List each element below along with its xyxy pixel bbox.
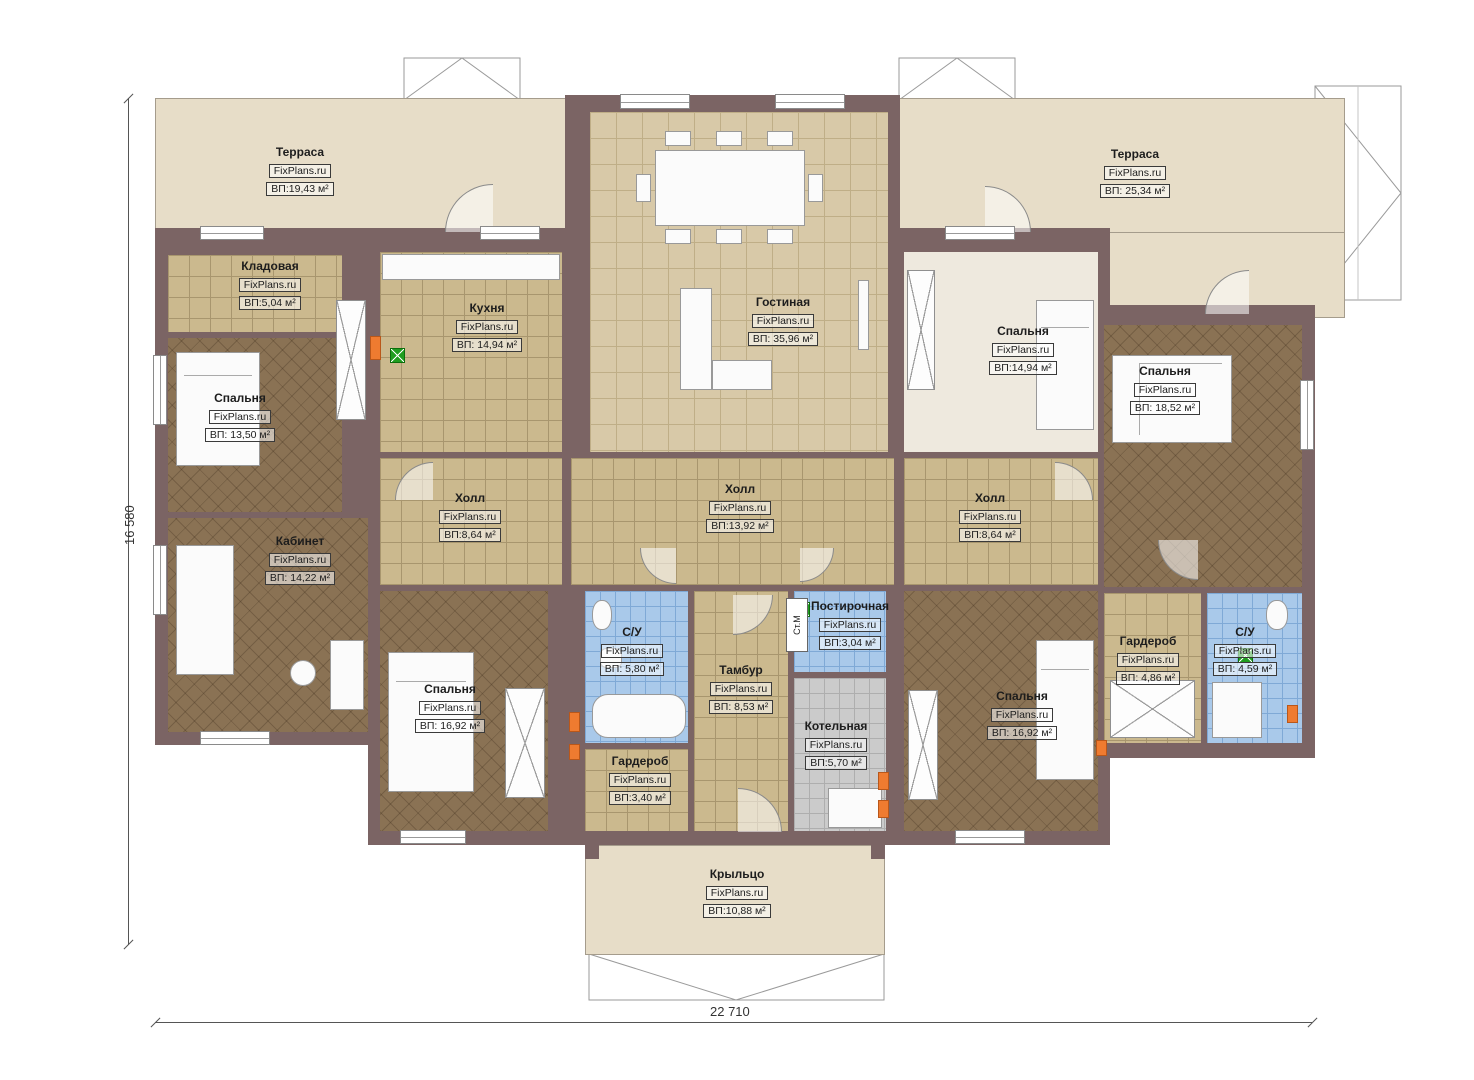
area-value: ВП:10,88 м² [703, 904, 770, 918]
area-value: ВП:3,04 м² [819, 636, 881, 650]
sofa [680, 288, 712, 390]
label-terrace-right: Терраса FixPlans.ru ВП: 25,34 м² [1080, 148, 1190, 200]
area-value: ВП: 16,92 м² [987, 726, 1057, 740]
watermark: FixPlans.ru [1117, 653, 1180, 667]
label-office: Кабинет FixPlans.ru ВП: 14,22 м² [245, 535, 355, 587]
label-bedroom-left: Спальня FixPlans.ru ВП: 13,50 м² [185, 392, 295, 444]
watermark: FixPlans.ru [819, 618, 882, 632]
label-bathroom-right: С/У FixPlans.ru ВП: 4,59 м² [1190, 626, 1300, 678]
label-wardrobe-center: Гардероб FixPlans.ru ВП:3,40 м² [585, 755, 695, 807]
chair [767, 131, 793, 146]
sofa [712, 360, 772, 390]
porch-column-right [871, 845, 885, 859]
area-value: ВП: 16,92 м² [415, 719, 485, 733]
watermark: FixPlans.ru [706, 886, 769, 900]
floor-plan: Ст.М Терраса FixPlans.ru ВП:19,43 м² Тер… [0, 0, 1474, 1080]
area-value: ВП: 8,53 м² [709, 700, 773, 714]
area-value: ВП:5,70 м² [805, 756, 867, 770]
label-livingroom: Гостиная FixPlans.ru ВП: 35,96 м² [728, 296, 838, 348]
label-vestibule: Тамбур FixPlans.ru ВП: 8,53 м² [686, 664, 796, 716]
wardrobe-cabinet [907, 270, 935, 390]
watermark: FixPlans.ru [456, 320, 519, 334]
watermark: FixPlans.ru [419, 701, 482, 715]
area-value: ВП: 4,59 м² [1213, 662, 1277, 676]
window [200, 226, 264, 240]
radiator [1287, 705, 1298, 723]
area-value: ВП:19,43 м² [266, 182, 333, 196]
boiler-unit [828, 788, 882, 828]
watermark: FixPlans.ru [1214, 644, 1277, 658]
watermark: FixPlans.ru [959, 510, 1022, 524]
label-hall-right: Холл FixPlans.ru ВП:8,64 м² [935, 492, 1045, 544]
terrace-left-area [155, 98, 568, 234]
radiator [569, 712, 580, 732]
label-porch: Крыльцо FixPlans.ru ВП:10,88 м² [682, 868, 792, 920]
radiator [569, 744, 580, 760]
chair [716, 229, 742, 244]
bathtub [592, 694, 686, 738]
watermark: FixPlans.ru [601, 644, 664, 658]
wardrobe-cabinet [505, 688, 545, 798]
area-value: ВП: 4,86 м² [1116, 671, 1180, 685]
label-boiler: Котельная FixPlans.ru ВП:5,70 м² [781, 720, 891, 772]
watermark: FixPlans.ru [209, 410, 272, 424]
area-value: ВП: 14,22 м² [265, 571, 335, 585]
dimension-line-horizontal [155, 1022, 1312, 1023]
label-bedroom-far-right: Спальня FixPlans.ru ВП: 18,52 м² [1110, 365, 1220, 417]
area-value: ВП: 13,50 м² [205, 428, 275, 442]
window [153, 545, 167, 615]
roof-porch-icon [588, 953, 885, 1001]
label-bedroom-bottom-right: Спальня FixPlans.ru ВП: 16,92 м² [967, 690, 1077, 742]
chair [808, 174, 823, 202]
watermark: FixPlans.ru [709, 501, 772, 515]
label-bedroom-top-right: Спальня FixPlans.ru ВП:14,94 м² [968, 325, 1078, 377]
window [153, 355, 167, 425]
label-terrace-left: Терраса FixPlans.ru ВП:19,43 м² [245, 146, 355, 198]
tv-stand [858, 280, 869, 350]
area-value: ВП: 18,52 м² [1130, 401, 1200, 415]
watermark: FixPlans.ru [710, 682, 773, 696]
chair [665, 131, 691, 146]
office-sofa [176, 545, 234, 675]
watermark: FixPlans.ru [439, 510, 502, 524]
label-laundry: Постирочная FixPlans.ru ВП:3,04 м² [795, 600, 905, 652]
window [945, 226, 1015, 240]
shower [1212, 682, 1262, 738]
watermark: FixPlans.ru [269, 553, 332, 567]
radiator [878, 772, 889, 790]
dimension-height-label: 16 580 [122, 505, 137, 545]
chair [665, 229, 691, 244]
watermark: FixPlans.ru [239, 278, 302, 292]
dimension-width-label: 22 710 [710, 1004, 750, 1019]
watermark: FixPlans.ru [805, 738, 868, 752]
wardrobe-cabinet [1110, 680, 1195, 738]
wardrobe-cabinet [908, 690, 938, 800]
area-value: ВП:8,64 м² [959, 528, 1021, 542]
fixture-marker [390, 348, 405, 363]
roof-gable-right-icon [898, 57, 1016, 101]
watermark: FixPlans.ru [269, 164, 332, 178]
office-chair [290, 660, 316, 686]
area-value: ВП:5,04 м² [239, 296, 301, 310]
area-value: ВП: 35,96 м² [748, 332, 818, 346]
area-value: ВП: 25,34 м² [1100, 184, 1170, 198]
label-storage: Кладовая FixPlans.ru ВП:5,04 м² [215, 260, 325, 312]
window [775, 94, 845, 109]
window [200, 731, 270, 745]
dining-table [655, 150, 805, 226]
area-value: ВП: 14,94 м² [452, 338, 522, 352]
radiator [878, 800, 889, 818]
wardrobe-cabinet [336, 300, 366, 420]
area-value: ВП: 5,80 м² [600, 662, 664, 676]
watermark: FixPlans.ru [609, 773, 672, 787]
office-desk [330, 640, 364, 710]
label-kitchen: Кухня FixPlans.ru ВП: 14,94 м² [432, 302, 542, 354]
watermark: FixPlans.ru [1134, 383, 1197, 397]
label-hall-center: Холл FixPlans.ru ВП:13,92 м² [685, 483, 795, 535]
area-value: ВП:3,40 м² [609, 791, 671, 805]
window [1300, 380, 1314, 450]
watermark: FixPlans.ru [992, 343, 1055, 357]
window [480, 226, 540, 240]
chair [716, 131, 742, 146]
label-hall-left: Холл FixPlans.ru ВП:8,64 м² [415, 492, 525, 544]
watermark: FixPlans.ru [991, 708, 1054, 722]
label-bathroom-left: С/У FixPlans.ru ВП: 5,80 м² [577, 626, 687, 678]
radiator [1096, 740, 1107, 756]
window [955, 830, 1025, 844]
radiator [370, 336, 381, 360]
kitchen-counter [382, 254, 560, 280]
area-value: ВП:13,92 м² [706, 519, 773, 533]
label-bedroom-bottom-left: Спальня FixPlans.ru ВП: 16,92 м² [395, 683, 505, 735]
label-wardrobe-right: Гардероб FixPlans.ru ВП: 4,86 м² [1093, 635, 1203, 687]
watermark: FixPlans.ru [1104, 166, 1167, 180]
porch-column-left [585, 845, 599, 859]
roof-gable-left-icon [403, 57, 521, 101]
chair [767, 229, 793, 244]
watermark: FixPlans.ru [752, 314, 815, 328]
window [620, 94, 690, 109]
chair [636, 174, 651, 202]
area-value: ВП:8,64 м² [439, 528, 501, 542]
area-value: ВП:14,94 м² [989, 361, 1056, 375]
window [400, 830, 466, 844]
